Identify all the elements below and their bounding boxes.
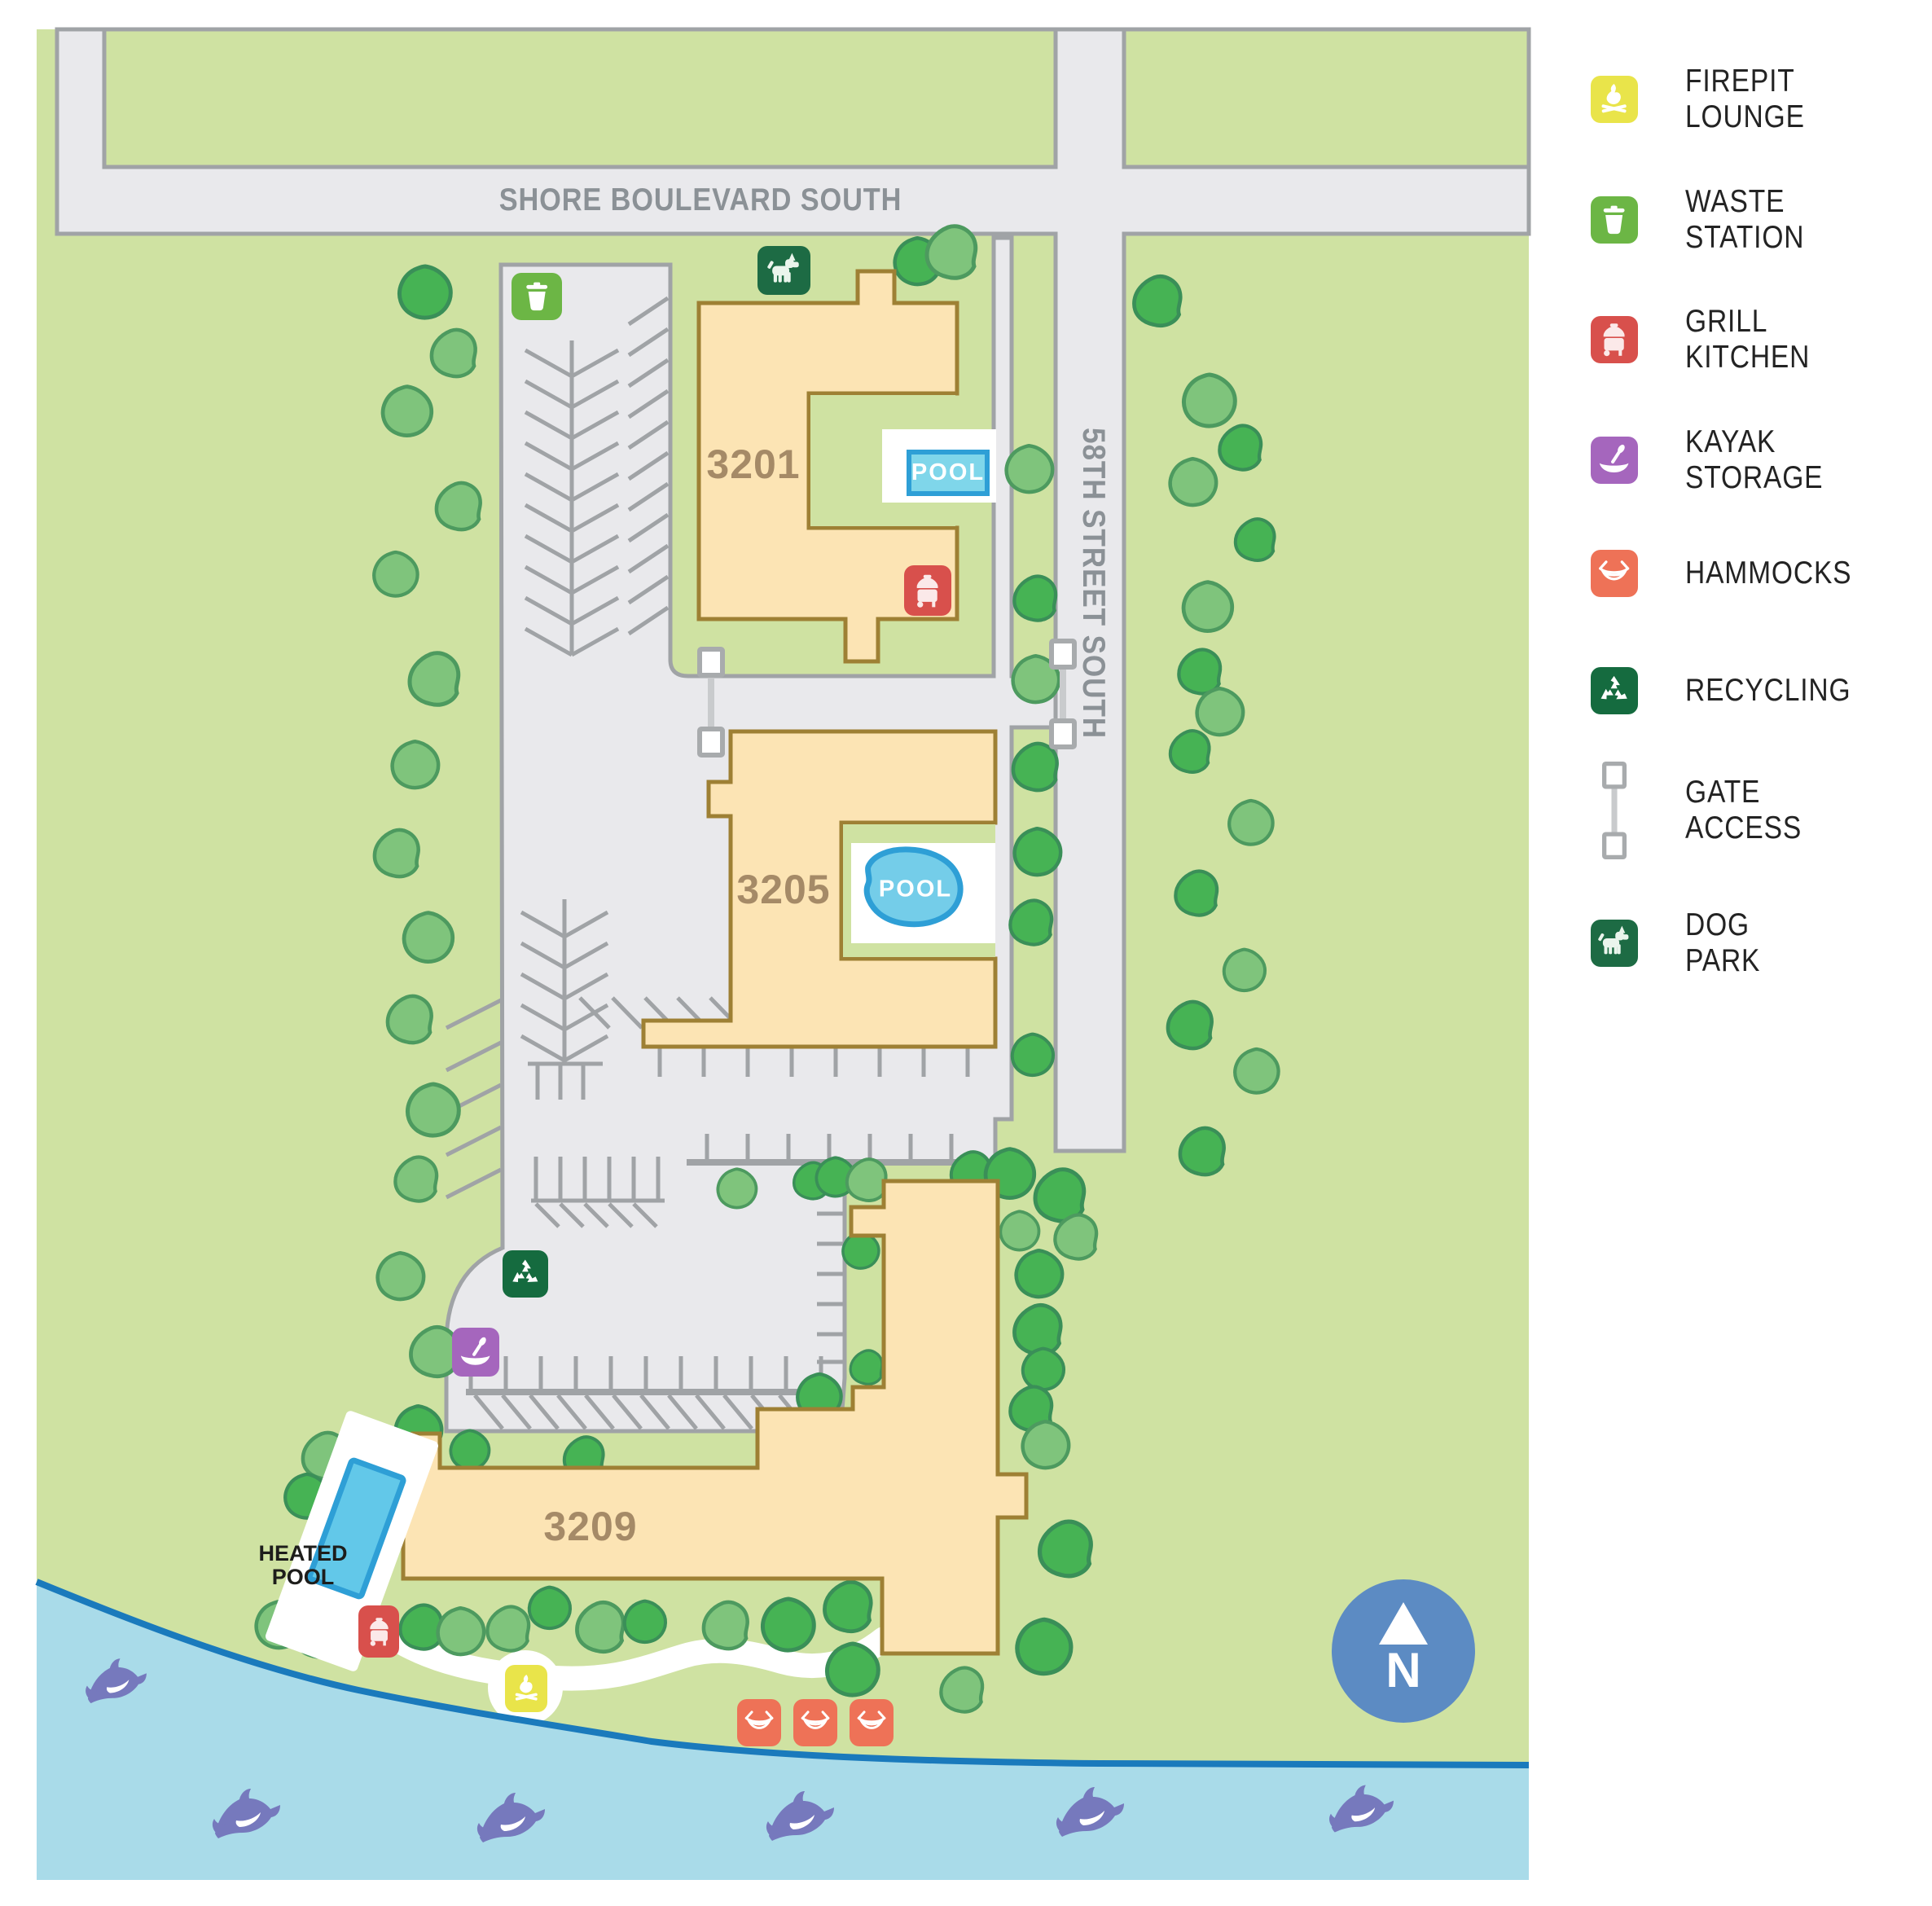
legend-item-gate-access: GATE ACCESS (1591, 762, 1820, 859)
map-marker-dog-park (757, 246, 810, 295)
legend-label: HAMMOCKS (1685, 556, 1851, 591)
legend-label: KAYAK STORAGE (1685, 424, 1823, 496)
legend-label: RECYCLING (1685, 673, 1851, 709)
legend-label: GATE ACCESS (1685, 775, 1802, 846)
legend-label: DOG PARK (1685, 907, 1760, 979)
gate-icon (1049, 639, 1077, 749)
kayak-icon (457, 1333, 494, 1372)
firepit-icon (1591, 76, 1638, 123)
street-label-shore-boulevard: SHORE BOULEVARD SOUTH (499, 182, 902, 218)
building-label-3201: 3201 (706, 441, 800, 488)
building-label-3209: 3209 (543, 1503, 637, 1550)
compass-arrow-icon (1379, 1602, 1428, 1645)
building-label-3205: 3205 (736, 866, 830, 913)
legend-item-recycling: RECYCLING (1591, 667, 1878, 714)
legend-item-waste-station: WASTE STATION (1591, 196, 1824, 244)
map-marker-grill-kitchen-north (904, 565, 951, 616)
recycle-icon (1591, 667, 1638, 714)
trash-icon (1591, 196, 1638, 244)
grill-icon (363, 1611, 395, 1652)
legend-item-dog-park: DOG PARK (1591, 920, 1772, 967)
map-marker-waste-station (512, 273, 562, 320)
compass-north: N (1332, 1579, 1475, 1723)
map-marker-gate-access-east (1049, 639, 1077, 749)
pool-label-3205: POOL (879, 876, 952, 903)
legend-label: GRILL KITCHEN (1685, 304, 1810, 375)
kayak-icon (1591, 437, 1638, 484)
firepit-icon (510, 1670, 543, 1706)
hammock-icon (1591, 550, 1638, 597)
grill-icon (1591, 316, 1638, 363)
map-marker-hammock-2 (793, 1699, 837, 1746)
legend-item-hammocks: HAMMOCKS (1591, 550, 1879, 597)
map-marker-firepit-lounge (505, 1665, 547, 1712)
hammock-icon (854, 1704, 889, 1741)
pool-sign-3201: POOL (907, 450, 990, 496)
legend-item-kayak-storage: KAYAK STORAGE (1591, 437, 1846, 484)
city-block-northwest (104, 29, 1056, 167)
map-marker-recycling (503, 1250, 548, 1298)
dog-icon (1591, 920, 1638, 967)
pool-sign-text: POOL (911, 459, 985, 486)
grill-icon (909, 571, 946, 610)
map-marker-hammock-3 (850, 1699, 894, 1746)
compass-label: N (1385, 1646, 1420, 1695)
map-marker-grill-kitchen-beach (358, 1605, 399, 1658)
legend-item-grill-kitchen: GRILL KITCHEN (1591, 316, 1830, 363)
trash-icon (517, 278, 556, 314)
gate-icon (697, 647, 725, 758)
map-marker-kayak-storage (452, 1328, 499, 1377)
street-label-58th-street: 58TH STREET SOUTH (1075, 428, 1111, 739)
legend-label: FIREPIT LOUNGE (1685, 64, 1805, 135)
hammock-icon (798, 1704, 832, 1741)
legend-item-firepit-lounge: FIREPIT LOUNGE (1591, 76, 1824, 123)
dog-icon (763, 252, 805, 290)
map-marker-gate-access-west (697, 647, 725, 758)
legend-label: WASTE STATION (1685, 184, 1804, 256)
map-marker-hammock-1 (737, 1699, 781, 1746)
gate-icon (1591, 762, 1638, 859)
heated-pool-label: HEATED POOL (258, 1542, 348, 1589)
hammock-icon (742, 1704, 776, 1741)
site-map-page: SHORE BOULEVARD SOUTH 58TH STREET SOUTH … (0, 0, 1932, 1906)
city-block-northeast (1124, 29, 1529, 167)
recycle-icon (507, 1255, 543, 1292)
